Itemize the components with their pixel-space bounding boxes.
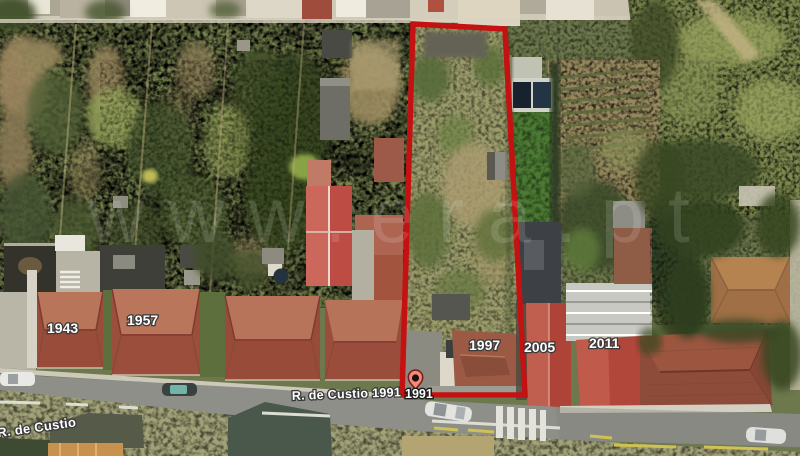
svg-text:1943: 1943 xyxy=(47,320,78,336)
svg-text:www.era.pt: www.era.pt xyxy=(87,171,714,259)
svg-text:1997: 1997 xyxy=(469,337,500,353)
svg-text:2005: 2005 xyxy=(524,339,555,355)
svg-text:1991: 1991 xyxy=(405,387,433,401)
svg-text:2011: 2011 xyxy=(589,335,620,351)
svg-text:1957: 1957 xyxy=(127,312,158,328)
